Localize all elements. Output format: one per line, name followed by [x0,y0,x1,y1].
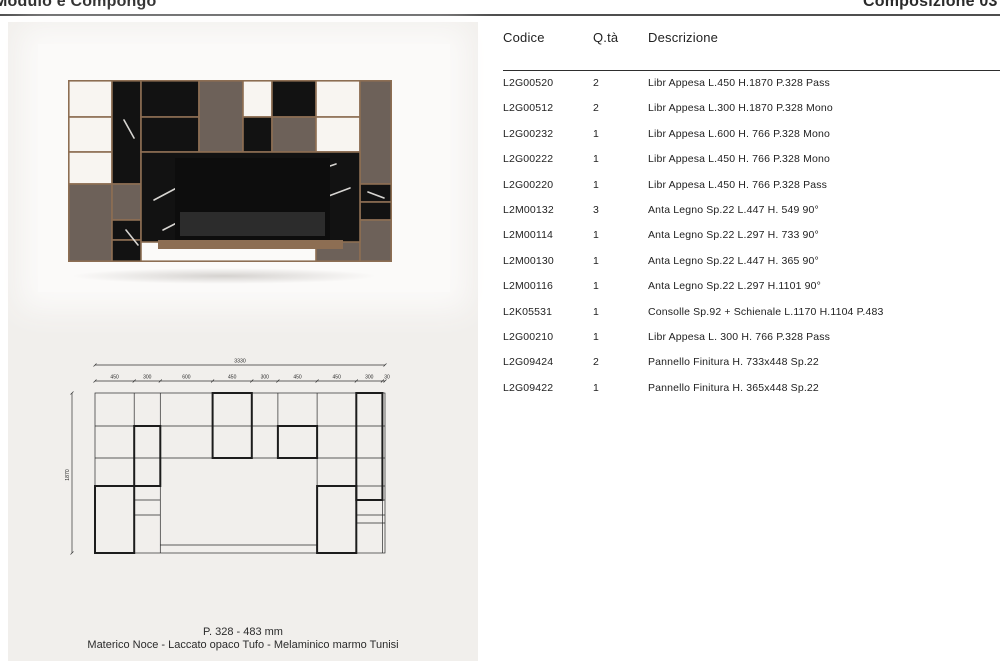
table-row: L2G00220 1 Libr Appesa L.450 H. 766 P.32… [503,173,1000,198]
qty-cell: 1 [593,325,648,350]
desc-cell: Libr Appesa L.300 H.1870 P.328 Mono [648,96,1000,121]
dim-segment-label: 450 [110,375,119,381]
code-cell: L2M00116 [503,274,593,299]
column-header-code: Codice [503,30,593,70]
table-row: L2G00520 2 Libr Appesa L.450 H.1870 P.32… [503,71,1000,96]
qty-cell: 1 [593,173,648,198]
qty-cell: 1 [593,249,648,274]
dim-height-label: 1870 [65,469,71,481]
page-title-left: Modulo e Compongo [0,0,156,11]
code-cell: L2G00232 [503,122,593,147]
desc-cell: Libr Appesa L.450 H.1870 P.328 Pass [648,71,1000,96]
desc-cell: Anta Legno Sp.22 L.297 H. 733 90° [648,223,1000,248]
product-photo-panel: 3330 1870 450 300 600 450 300 450 450 30… [8,22,478,661]
table-row: L2K05531 1 Consolle Sp.92 + Schienale L.… [503,300,1000,325]
code-cell: L2G00220 [503,173,593,198]
qty-cell: 2 [593,71,648,96]
dim-segment-label: 300 [143,375,152,381]
dim-segment-label: 300 [261,375,270,381]
code-cell: L2M00114 [503,223,593,248]
desc-cell: Libr Appesa L.450 H. 766 P.328 Mono [648,147,1000,172]
desc-cell: Anta Legno Sp.22 L.447 H. 365 90° [648,249,1000,274]
caption-depth: P. 328 - 483 mm [8,626,478,639]
code-cell: L2G00512 [503,96,593,121]
table-row: L2G00222 1 Libr Appesa L.450 H. 766 P.32… [503,147,1000,172]
code-cell: L2G09424 [503,350,593,375]
desc-cell: Libr Appesa L.600 H. 766 P.328 Mono [648,122,1000,147]
desc-cell: Pannello Finitura H. 733x448 Sp.22 [648,350,1000,375]
table-header: Codice Q.tà Descrizione [503,30,1000,70]
catalog-page: Modulo e Compongo Composizione 03 [0,0,1000,661]
table-row: L2G00512 2 Libr Appesa L.300 H.1870 P.32… [503,96,1000,121]
desc-cell: Anta Legno Sp.22 L.447 H. 549 90° [648,198,1000,223]
code-cell: L2G00222 [503,147,593,172]
table-row: L2M00116 1 Anta Legno Sp.22 L.297 H.1101… [503,274,1000,299]
table-row: L2M00114 1 Anta Legno Sp.22 L.297 H. 733… [503,223,1000,248]
table-row: L2G09422 1 Pannello Finitura H. 365x448 … [503,376,1000,401]
page-title-right: Composizione 03 [863,0,998,11]
desc-cell: Libr Appesa L.450 H. 766 P.328 Pass [648,173,1000,198]
desc-cell: Libr Appesa L. 300 H. 766 P.328 Pass [648,325,1000,350]
desc-cell: Pannello Finitura H. 365x448 Sp.22 [648,376,1000,401]
column-header-desc: Descrizione [648,30,1000,70]
column-header-qty: Q.tà [593,30,648,70]
parts-table: Codice Q.tà Descrizione L2G00520 2 Libr … [503,30,1000,401]
photo-caption: P. 328 - 483 mm Materico Noce - Laccato … [8,626,478,652]
caption-finishes: Materico Noce - Laccato opaco Tufo - Mel… [8,639,478,652]
qty-cell: 2 [593,350,648,375]
code-cell: L2M00132 [503,198,593,223]
desc-cell: Consolle Sp.92 + Schienale L.1170 H.1104… [648,300,1000,325]
dim-total-label: 3330 [234,359,246,365]
qty-cell: 1 [593,122,648,147]
header-divider [0,14,1000,16]
qty-cell: 1 [593,223,648,248]
qty-cell: 1 [593,274,648,299]
dim-segment-label: 450 [333,375,342,381]
qty-cell: 1 [593,147,648,172]
dim-segment-label: 30 [384,375,390,381]
qty-cell: 3 [593,198,648,223]
code-cell: L2M00130 [503,249,593,274]
dim-segment-label: 450 [228,375,237,381]
qty-cell: 2 [593,96,648,121]
dim-segment-label: 600 [182,375,191,381]
code-cell: L2G00520 [503,71,593,96]
code-cell: L2K05531 [503,300,593,325]
unit-shadow [70,268,378,284]
table-row: L2G00210 1 Libr Appesa L. 300 H. 766 P.3… [503,325,1000,350]
table-row: L2G00232 1 Libr Appesa L.600 H. 766 P.32… [503,122,1000,147]
qty-cell: 1 [593,300,648,325]
table-row: L2M00132 3 Anta Legno Sp.22 L.447 H. 549… [503,198,1000,223]
tv-console [158,240,343,249]
technical-drawing: 3330 1870 450 300 600 450 300 450 450 30… [60,355,400,570]
code-cell: L2G09422 [503,376,593,401]
desc-cell: Anta Legno Sp.22 L.297 H.1101 90° [648,274,1000,299]
table-row: L2M00130 1 Anta Legno Sp.22 L.447 H. 365… [503,249,1000,274]
dim-segment-label: 450 [293,375,302,381]
wall-unit-photo [68,80,392,262]
dim-segment-label: 300 [365,375,374,381]
table-row: L2G09424 2 Pannello Finitura H. 733x448 … [503,350,1000,375]
qty-cell: 1 [593,376,648,401]
code-cell: L2G00210 [503,325,593,350]
